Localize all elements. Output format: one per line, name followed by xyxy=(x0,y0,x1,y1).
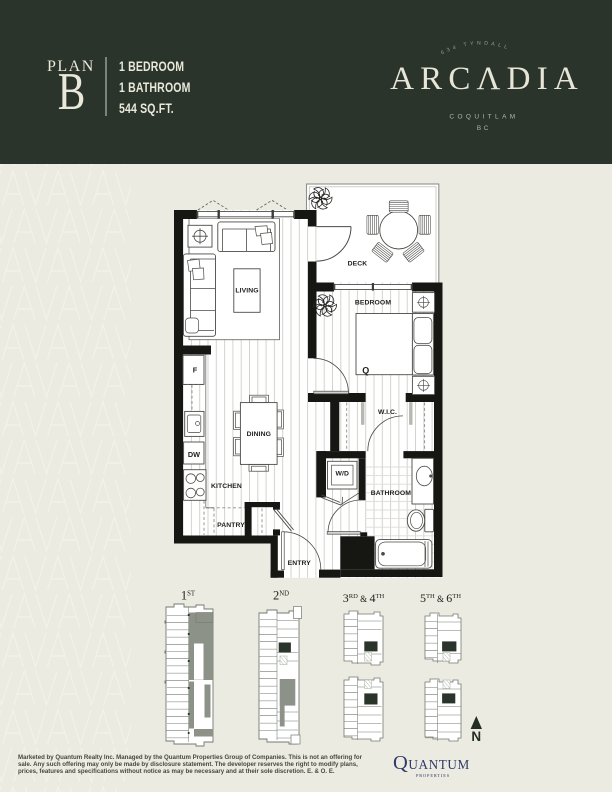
svg-text:Q: Q xyxy=(362,365,369,375)
svg-text:3RD & 4TH: 3RD & 4TH xyxy=(343,591,385,605)
svg-text:ENTRY: ENTRY xyxy=(288,560,312,567)
svg-text:BEDROOM: BEDROOM xyxy=(355,300,391,307)
svg-text:W.I.C.: W.I.C. xyxy=(378,409,397,416)
svg-text:PANTRY: PANTRY xyxy=(217,522,245,529)
svg-text:1ST: 1ST xyxy=(181,589,196,603)
svg-text:F: F xyxy=(193,365,198,374)
svg-text:W/D: W/D xyxy=(336,471,350,478)
svg-text:KITCHEN: KITCHEN xyxy=(211,483,242,490)
svg-text:DINING: DINING xyxy=(247,431,271,438)
svg-text:DW: DW xyxy=(188,450,200,459)
svg-text:N: N xyxy=(471,729,481,744)
svg-text:LIVING: LIVING xyxy=(235,288,258,295)
svg-text:DECK: DECK xyxy=(348,261,368,268)
svg-text:BATHROOM: BATHROOM xyxy=(371,490,412,497)
svg-text:5TH & 6TH: 5TH & 6TH xyxy=(420,591,461,605)
svg-text:2ND: 2ND xyxy=(273,589,289,603)
